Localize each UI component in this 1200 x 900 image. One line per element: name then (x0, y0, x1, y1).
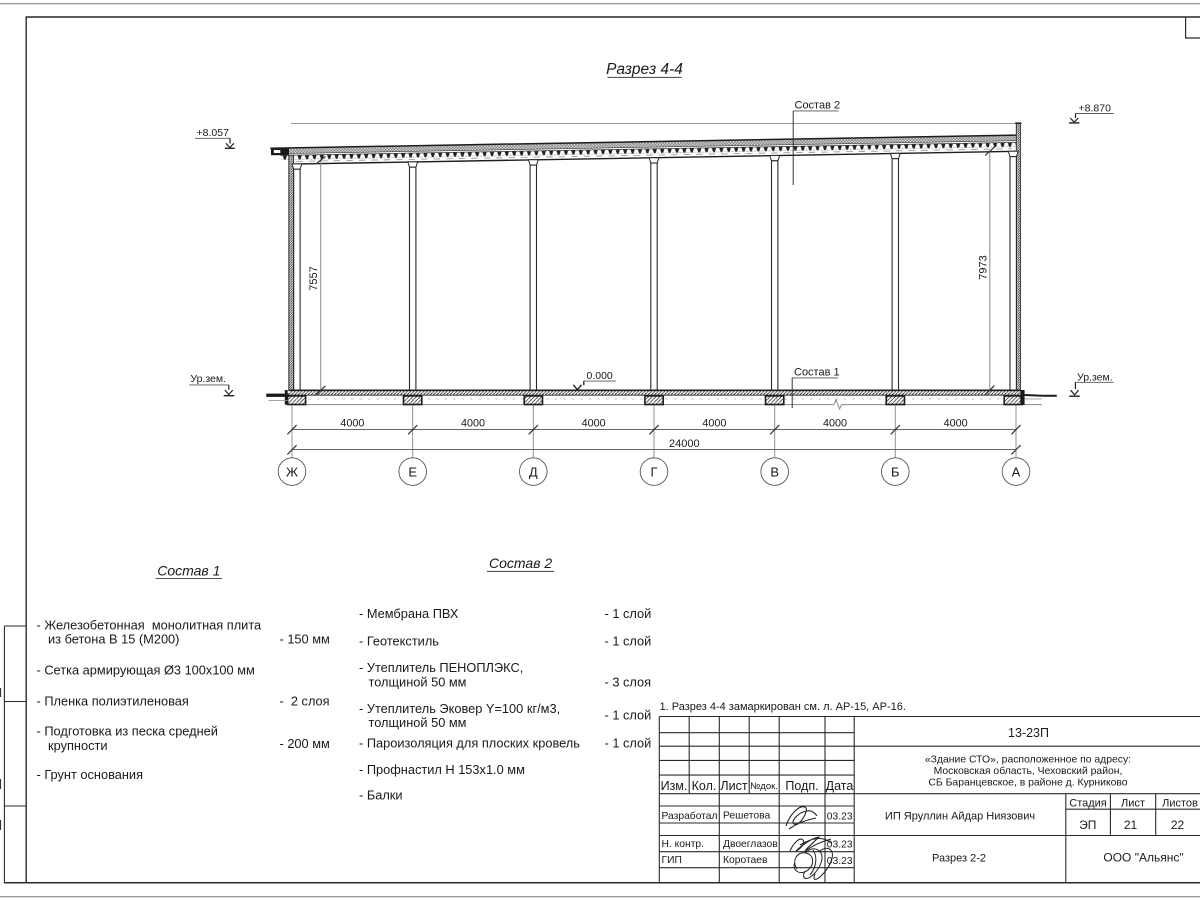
svg-text:Состав 1: Состав 1 (157, 563, 220, 579)
svg-text:- Балки: - Балки (359, 788, 403, 803)
svg-text:ИП Яруллин Айдар Ниязович: ИП Яруллин Айдар Ниязович (885, 811, 1035, 823)
svg-text:24000: 24000 (669, 438, 700, 450)
svg-text:+8.870: +8.870 (1079, 103, 1112, 115)
svg-text:13-23П: 13-23П (1008, 726, 1049, 740)
svg-text:4000: 4000 (702, 418, 726, 430)
svg-text:4000: 4000 (582, 418, 606, 430)
svg-text:из бетона В 15 (М200): из бетона В 15 (М200) (48, 632, 179, 647)
svg-text:СБ Баранцевское, в районе д. К: СБ Баранцевское, в районе д. Курниково (928, 778, 1127, 789)
svg-text:Стадия: Стадия (1069, 798, 1107, 810)
svg-text:толщиной 50 мм: толщиной 50 мм (369, 674, 467, 689)
svg-text:7973: 7973 (977, 255, 989, 279)
svg-text:- Железобетонная монолитная п: - Железобетонная монолитная плита (37, 617, 263, 632)
svg-text:«Здание СТО», расположенное по: «Здание СТО», расположенное по адресу: (925, 755, 1131, 766)
svg-text:4000: 4000 (461, 418, 485, 430)
svg-text:Б: Б (891, 464, 900, 479)
svg-text:крупности: крупности (48, 738, 108, 753)
svg-text:В: В (770, 464, 779, 479)
svg-text:толщиной 50 мм: толщиной 50 мм (369, 715, 467, 730)
svg-text:4000: 4000 (823, 418, 847, 430)
svg-text:Лист: Лист (720, 779, 747, 793)
svg-text:- Утеплитель Эковер Y=100 кг/м: - Утеплитель Эковер Y=100 кг/м3, (359, 701, 560, 716)
svg-text:- Пароизоляция для плоских кро: - Пароизоляция для плоских кровель (359, 736, 580, 751)
svg-text:Лист: Лист (1121, 798, 1145, 810)
svg-text:- 1 слой: - 1 слой (605, 708, 652, 723)
svg-text:А: А (1012, 464, 1021, 479)
svg-text:Ж: Ж (286, 464, 298, 479)
svg-text:- 1 слой: - 1 слой (605, 736, 652, 751)
svg-text:- Сетка армирующая Ø3 100х100: - Сетка армирующая Ø3 100х100 мм (37, 662, 255, 677)
svg-text:- Пленка полиэтиленовая: - Пленка полиэтиленовая (37, 693, 189, 708)
svg-text:ООО "Альянс": ООО "Альянс" (1103, 851, 1183, 865)
svg-text:Изм.: Изм. (661, 779, 688, 793)
svg-text:Двоеглазов: Двоеглазов (723, 839, 778, 850)
svg-text:Листов: Листов (1162, 798, 1198, 810)
svg-text:- 1 слой: - 1 слой (605, 606, 652, 621)
svg-text:Ур.зем.: Ур.зем. (190, 373, 226, 385)
svg-text:4000: 4000 (340, 418, 364, 430)
svg-text:4000: 4000 (944, 418, 968, 430)
svg-text:ЭП: ЭП (1079, 818, 1096, 832)
svg-text:Разработал: Разработал (662, 810, 718, 822)
svg-text:03.23: 03.23 (827, 812, 853, 823)
svg-text:- 200 мм: - 200 мм (280, 736, 330, 751)
svg-text:Г: Г (650, 464, 657, 479)
svg-text:+8.057: +8.057 (197, 127, 230, 139)
svg-text:0.000: 0.000 (587, 370, 613, 382)
svg-text:Разрез 2-2: Разрез 2-2 (932, 853, 986, 865)
svg-text:Состав 2: Состав 2 (795, 100, 841, 112)
svg-text:- Утеплитель ПЕНОПЛЭКС,: - Утеплитель ПЕНОПЛЭКС, (359, 660, 523, 675)
svg-text:Московская область, Чеховский: Московская область, Чеховский район, (934, 765, 1123, 777)
svg-text:Коротаев: Коротаев (723, 855, 768, 866)
svg-text:ГИП: ГИП (662, 855, 682, 866)
svg-text:- 150 мм: - 150 мм (280, 632, 330, 647)
svg-text:Состав 2: Состав 2 (489, 555, 552, 571)
svg-text:- 1 слой: - 1 слой (605, 634, 652, 649)
svg-text:- 3 слоя: - 3 слоя (605, 674, 652, 689)
svg-text:- Подготовка из песка средней: - Подготовка из песка средней (37, 724, 218, 739)
svg-text:Разрез 4-4: Разрез 4-4 (606, 61, 683, 78)
svg-text:Е: Е (408, 464, 417, 479)
svg-text:- Грунт основания: - Грунт основания (37, 767, 144, 782)
svg-text:Кол.: Кол. (692, 779, 717, 793)
svg-text:- Профнастил Н 153х1.0 мм: - Профнастил Н 153х1.0 мм (359, 762, 525, 777)
svg-text:7557: 7557 (308, 266, 320, 290)
svg-text:- Мембрана ПВХ: - Мембрана ПВХ (359, 606, 459, 621)
svg-text:22: 22 (1171, 818, 1185, 832)
svg-text:- Геотекстиль: - Геотекстиль (359, 634, 439, 649)
svg-text:03.23: 03.23 (827, 840, 853, 851)
svg-text:Состав 1: Состав 1 (794, 367, 840, 379)
svg-text:Д: Д (529, 464, 538, 479)
svg-text:1. Разрез 4-4 замаркирован см.: 1. Разрез 4-4 замаркирован см. л. АР-15,… (660, 701, 906, 713)
svg-text:- 2 слоя: - 2 слоя (280, 693, 330, 708)
svg-text:21: 21 (1124, 818, 1138, 832)
svg-text:Н. контр.: Н. контр. (662, 839, 705, 850)
svg-text:Ур.зем.: Ур.зем. (1077, 371, 1113, 383)
svg-text:Подп.: Подп. (785, 779, 818, 793)
svg-text:№док.: №док. (750, 781, 778, 792)
svg-text:Решетова: Решетова (723, 811, 770, 822)
svg-text:Дата: Дата (826, 779, 854, 793)
